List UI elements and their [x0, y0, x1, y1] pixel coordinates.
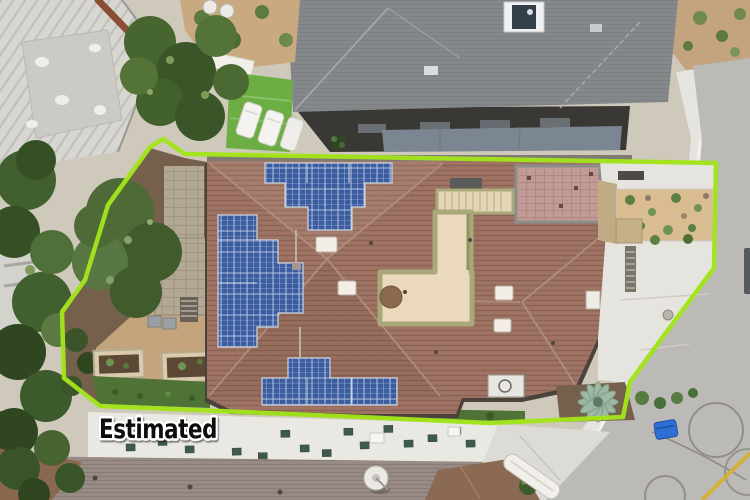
rooftop-ac: [448, 427, 460, 436]
estimated-label: Estimated: [99, 414, 217, 445]
rooftop-unit: [488, 375, 524, 397]
ac-unit: [163, 318, 176, 329]
skylight: [494, 319, 511, 332]
ac-unit: [148, 316, 161, 327]
courtyard-table: [380, 286, 402, 308]
wall-fixture: [586, 291, 600, 309]
house-side-wall: [598, 180, 617, 244]
skylight: [495, 286, 513, 300]
gate-structure: [616, 219, 642, 243]
parked-car: [744, 248, 750, 294]
aerial-photo: Estimated: [0, 0, 750, 500]
roof-vent: [590, 24, 602, 32]
neighbor-house-top: [287, 0, 678, 152]
neighbor-patio: [382, 126, 622, 152]
rooftop-ac: [370, 433, 384, 443]
garden-bed: [94, 349, 145, 379]
door-mat: [618, 171, 644, 180]
trash-bin: [654, 419, 679, 440]
manhole: [663, 310, 673, 320]
side-stairs-right: [625, 246, 636, 292]
roof-vent-round: [220, 4, 234, 18]
main-house: [205, 161, 609, 418]
skylight: [338, 281, 356, 295]
roof-vent: [424, 66, 438, 75]
skylight: [316, 237, 337, 252]
aerial-photo-stage: Estimated: [0, 0, 750, 500]
roof-vent-round: [203, 0, 217, 14]
potted-plant: [330, 134, 346, 150]
